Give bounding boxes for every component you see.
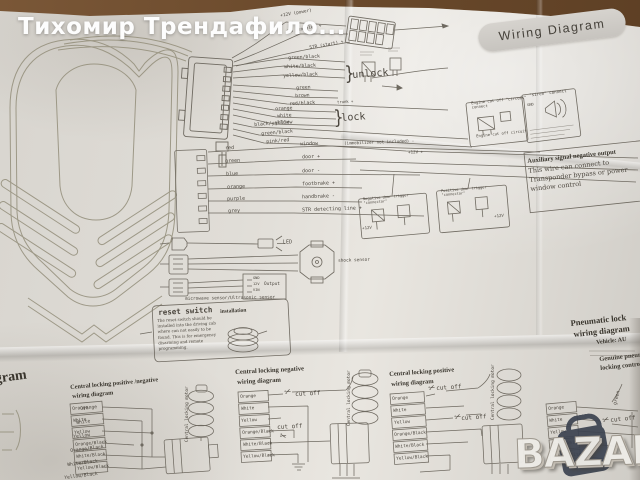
watermark-letters: BAZAR bbox=[513, 427, 640, 478]
io-color-label: blue bbox=[226, 171, 238, 177]
io-color-label: grey bbox=[228, 208, 240, 214]
wire-color-cell: White bbox=[393, 407, 407, 413]
io-function-label: window bbox=[300, 140, 318, 146]
photo-of-wiring-diagram: +12V (power) IG (enable) + STR (start) +… bbox=[0, 0, 640, 480]
motor-label: Central locking motor bbox=[490, 364, 495, 420]
io-function-label: door + bbox=[302, 153, 320, 159]
io-color-label: red bbox=[225, 145, 234, 151]
io-function-label: handbrake - bbox=[302, 193, 335, 200]
led-plug bbox=[172, 238, 187, 250]
reset-switch-instructions: The reset switch should be installed int… bbox=[157, 314, 234, 351]
wire-color-cell: White bbox=[241, 405, 254, 411]
output-label: Output bbox=[264, 281, 280, 286]
io-function-label: footbrake + bbox=[302, 180, 335, 187]
cutoff-label: cut off bbox=[295, 390, 321, 398]
output-pin-label: 12V bbox=[253, 282, 260, 286]
wire-color-cell: Yellow bbox=[394, 419, 410, 425]
actuator-2 bbox=[330, 370, 378, 478]
wire-color-cell: Yellow bbox=[241, 417, 257, 423]
wire-label: brown bbox=[295, 92, 310, 98]
trunk-label: trunk + bbox=[337, 99, 353, 104]
wire-label: white bbox=[277, 112, 292, 118]
output-pin-label: GND bbox=[253, 276, 260, 280]
motor-label: Central locking motor bbox=[346, 370, 351, 426]
led-label: LED bbox=[283, 239, 292, 245]
actuator-1 bbox=[164, 385, 219, 474]
ground-symbol bbox=[292, 464, 305, 470]
io-color-label: purple bbox=[227, 195, 245, 201]
lock-group-label: lock bbox=[341, 111, 366, 124]
siren-gnd-label: GND bbox=[527, 102, 534, 107]
cutoff-label: cut off bbox=[277, 423, 303, 431]
wire-color-cell: Orange bbox=[240, 393, 256, 399]
plus12v-label: +12V bbox=[362, 225, 372, 230]
io-function-label: door - bbox=[302, 167, 320, 173]
accessory-drawings bbox=[160, 236, 334, 299]
plus12v-label: +12V bbox=[494, 213, 504, 218]
wire-label: green bbox=[296, 84, 311, 90]
motor-label: Central locking motor bbox=[184, 386, 189, 442]
output-pin-label: VIN bbox=[253, 288, 260, 292]
shock-sensor-drawing bbox=[300, 241, 334, 283]
wire-label: orange bbox=[275, 105, 293, 111]
listing-title-overlay: Тихомир Трендафило... bbox=[18, 14, 346, 40]
power-note: +12V + bbox=[408, 149, 423, 154]
io-color-label: orange bbox=[227, 183, 245, 189]
io-color-label: green bbox=[225, 157, 240, 163]
bazar-watermark: BAZAR bbox=[513, 420, 640, 480]
